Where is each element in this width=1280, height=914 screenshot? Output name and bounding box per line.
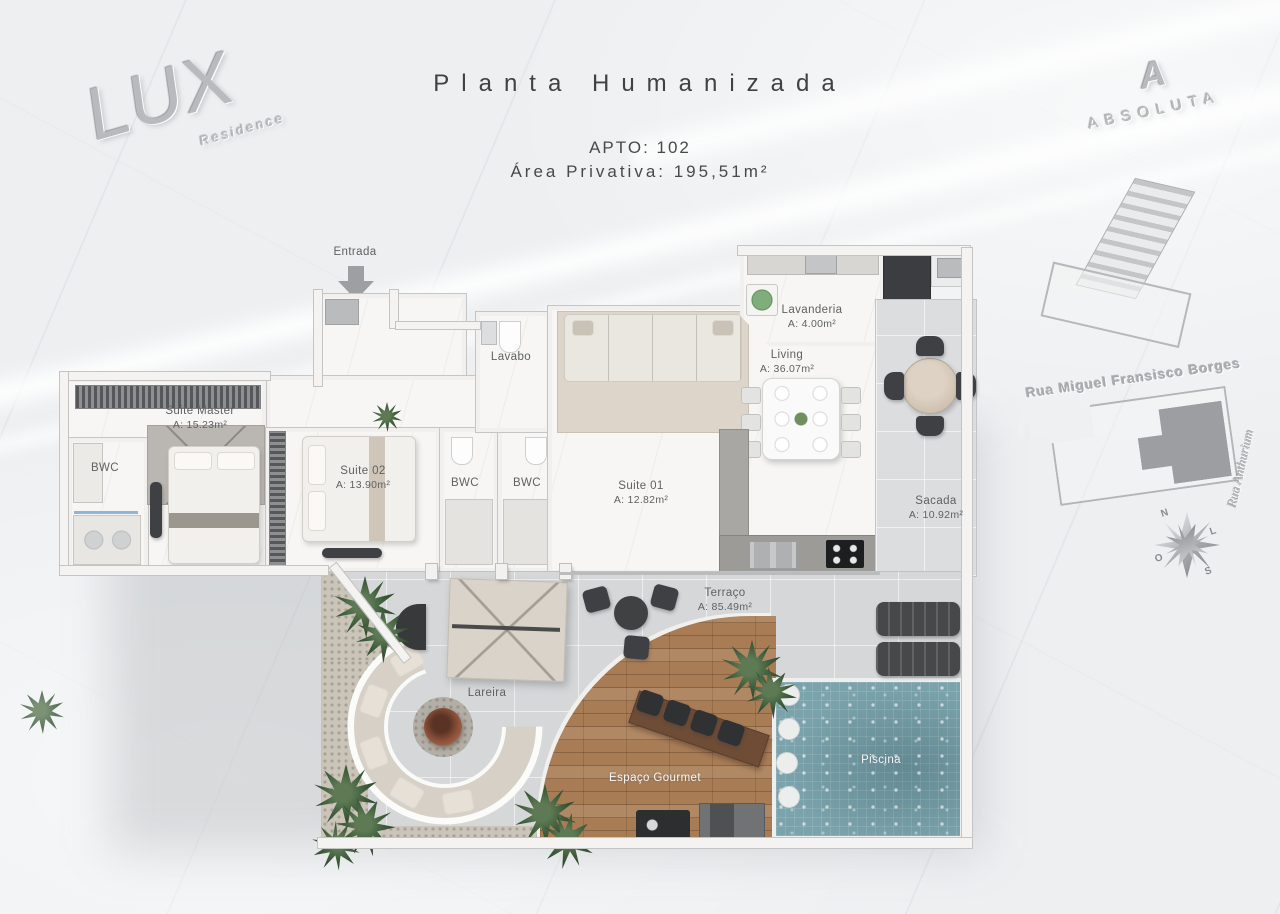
washing-machine <box>746 284 778 316</box>
wall <box>962 248 972 848</box>
suite-02-wardrobe <box>270 432 285 568</box>
entrance-label: Entrada <box>315 245 395 260</box>
sofa-cushion <box>712 320 734 336</box>
entrance-label-text: Entrada <box>315 245 395 260</box>
dining-chair <box>741 387 761 404</box>
grill <box>636 810 690 840</box>
bed-runner <box>169 513 259 528</box>
pool <box>772 678 964 840</box>
bwc-1-toilet <box>452 438 472 464</box>
balcony-chair <box>916 416 944 436</box>
kitchen-island <box>720 430 748 536</box>
pool-step <box>778 718 800 740</box>
firepit-bowl <box>424 708 462 746</box>
pergola-post <box>426 564 437 579</box>
sun-lounger <box>876 642 960 676</box>
suite-02-bed <box>302 436 416 542</box>
sofa-cushion <box>572 320 594 336</box>
lavabo-toilet <box>500 322 520 352</box>
counter-appliance-sink <box>938 259 962 277</box>
sun-lounger <box>876 602 960 636</box>
pool-step <box>776 752 798 774</box>
wall <box>314 290 322 386</box>
fridge <box>884 254 930 302</box>
pergola-post <box>496 564 507 579</box>
wall <box>396 322 480 329</box>
kitchen-cooktop <box>826 540 864 568</box>
compass-east-label: L <box>1208 525 1217 537</box>
bwc-master-shower <box>74 444 102 502</box>
gourmet-counter <box>700 804 764 840</box>
wall <box>318 838 972 848</box>
suite-master-bench <box>150 482 162 538</box>
bwc-master-counter <box>74 516 140 564</box>
absoluta-logo-mark: A <box>1135 51 1169 97</box>
pillow <box>308 491 326 531</box>
dining-chair <box>841 414 861 431</box>
bwc-1-shower <box>446 500 492 564</box>
sliding-door-track <box>560 572 880 575</box>
floorplan-poster: Planta Humanizada APTO: 102 Área Privati… <box>0 0 1280 914</box>
wall <box>60 372 270 380</box>
lavabo-sink <box>482 322 496 344</box>
dining-chair <box>841 441 861 458</box>
bwc-master-towel <box>74 511 138 514</box>
pillow <box>174 452 212 470</box>
balcony-chair <box>916 336 944 356</box>
kitchen-sink <box>750 542 796 568</box>
terrace-side-table <box>614 596 648 630</box>
palm-plant <box>20 690 64 734</box>
entrance-arrow-icon <box>348 266 364 281</box>
compass-south-label: S <box>1203 565 1213 578</box>
suite-master-bed <box>168 446 260 564</box>
suite-master-closet <box>76 386 260 408</box>
lavanderia-sink <box>806 256 836 273</box>
balcony-table <box>902 358 958 414</box>
pool-step <box>778 786 800 808</box>
pillow <box>308 445 326 485</box>
dining-table <box>762 378 840 460</box>
suite-02-bench <box>322 548 382 558</box>
wall <box>738 246 970 255</box>
bed-runner <box>369 437 385 541</box>
lux-residence-logo: LUX Residence <box>72 8 305 219</box>
bwc-2-shower <box>504 500 552 564</box>
compass-north-label: N <box>1159 507 1169 520</box>
balcony-chair <box>884 372 904 400</box>
entry-cabinet <box>326 300 358 324</box>
wall <box>60 566 328 575</box>
compass-west-label: O <box>1153 552 1164 565</box>
pillow <box>217 452 255 470</box>
dining-chair <box>841 387 861 404</box>
wall <box>60 372 68 574</box>
dining-chair <box>741 414 761 431</box>
bwc-2-toilet <box>526 438 546 464</box>
terrace-armchair <box>623 635 650 660</box>
